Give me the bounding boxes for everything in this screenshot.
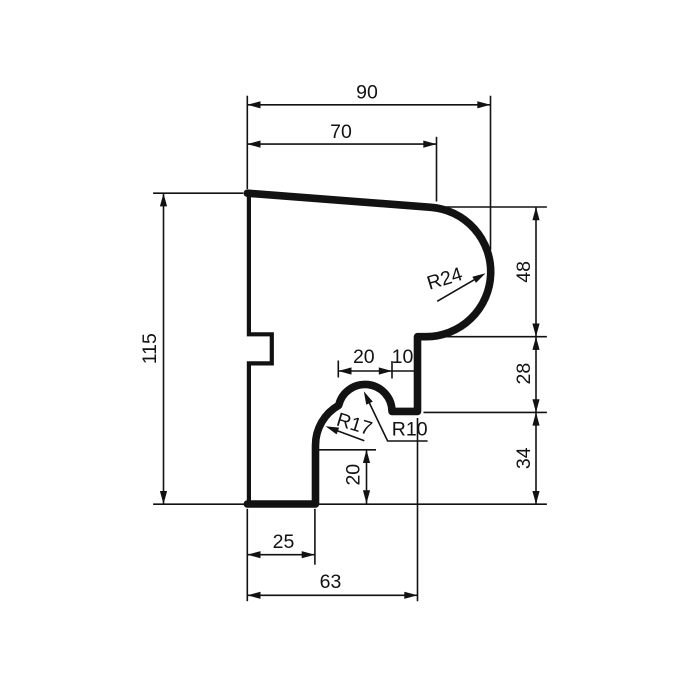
- svg-text:63: 63: [320, 571, 342, 593]
- svg-text:25: 25: [273, 531, 295, 553]
- svg-text:90: 90: [356, 82, 378, 104]
- svg-text:20: 20: [353, 346, 375, 368]
- svg-text:20: 20: [343, 464, 365, 486]
- svg-text:115: 115: [139, 333, 161, 364]
- svg-text:R10: R10: [392, 419, 428, 441]
- svg-text:34: 34: [513, 447, 535, 469]
- svg-text:48: 48: [513, 261, 535, 283]
- svg-text:10: 10: [392, 346, 414, 368]
- svg-text:70: 70: [330, 121, 352, 143]
- svg-text:28: 28: [513, 363, 535, 385]
